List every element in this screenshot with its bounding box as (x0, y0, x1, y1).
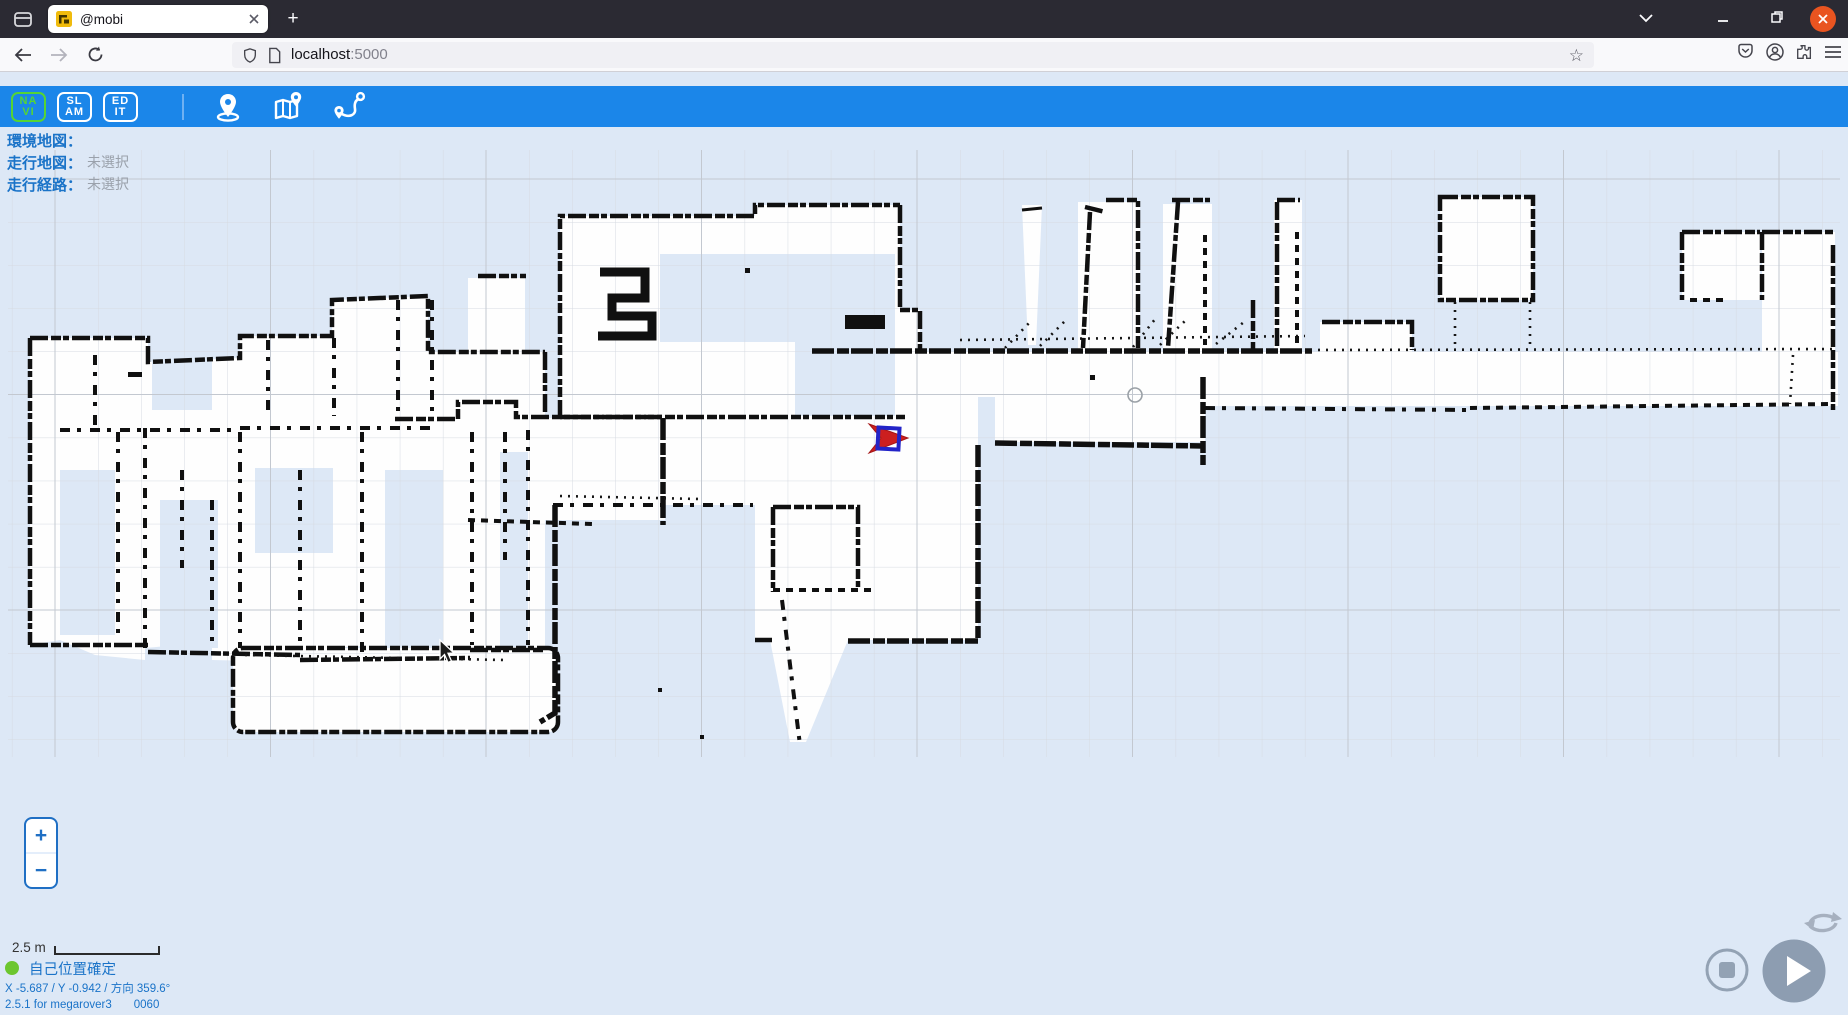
loop-route-icon[interactable] (1802, 906, 1844, 941)
bookmark-star-icon[interactable]: ☆ (1569, 47, 1584, 64)
scale-label: 2.5 m (12, 940, 46, 955)
menu-hamburger-icon[interactable] (1824, 45, 1842, 64)
new-tab-button[interactable]: + (280, 6, 306, 32)
drive-map-value: 未選択 (87, 152, 129, 172)
app-viewport: NA VI SL AM ED IT (0, 72, 1848, 1015)
zoom-out-button[interactable]: − (26, 854, 56, 887)
browser-tab[interactable]: @mobi (48, 5, 268, 33)
url-host: localhost (291, 46, 350, 63)
url-bar[interactable]: localhost:5000 ☆ (232, 42, 1594, 68)
version-text: 2.5.1 for megarover3 (5, 999, 112, 1011)
tab-list-chevron-icon[interactable] (1638, 10, 1654, 28)
back-icon[interactable] (8, 42, 38, 68)
mode-button-navi[interactable]: NA VI (11, 92, 46, 122)
pose-readout: X -5.687 / Y -0.942 / 方向 359.6° (5, 980, 170, 996)
reload-icon[interactable] (80, 42, 110, 68)
tab-favicon (56, 11, 72, 27)
localization-status-dot (5, 961, 19, 975)
drive-map-label: 走行地図： (7, 152, 82, 173)
page-info-icon[interactable] (267, 47, 282, 64)
map-selection-panel: 環境地図： 走行地図： 未選択 走行経路： 未選択 (7, 129, 129, 195)
map-grid (8, 150, 1840, 757)
version-code: 0060 (134, 999, 160, 1011)
play-button[interactable] (1761, 938, 1827, 1009)
status-panel: 自己位置確定 X -5.687 / Y -0.942 / 方向 359.6° 2… (5, 959, 170, 1011)
account-icon[interactable] (1765, 42, 1785, 67)
route-value: 未選択 (87, 174, 129, 194)
close-window-icon[interactable] (1810, 6, 1836, 32)
env-map-label: 環境地図： (7, 130, 82, 151)
mode-button-slam[interactable]: SL AM (57, 92, 92, 122)
minimize-icon[interactable] (1716, 10, 1730, 29)
forward-icon[interactable] (44, 42, 74, 68)
zoom-in-button[interactable]: + (26, 819, 56, 852)
pocket-icon[interactable] (1736, 43, 1755, 66)
url-port: :5000 (350, 46, 388, 63)
localization-status-text: 自己位置確定 (29, 958, 116, 979)
shield-icon[interactable] (242, 47, 258, 64)
browser-navbar: localhost:5000 ☆ (0, 38, 1848, 72)
restore-window-icon[interactable] (1770, 10, 1784, 29)
tab-close-icon[interactable] (248, 13, 260, 25)
map-scale: 2.5 m (12, 940, 160, 955)
set-position-icon[interactable] (212, 91, 244, 123)
map-select-icon[interactable] (272, 91, 304, 123)
mode-toolbar: NA VI SL AM ED IT (0, 86, 1848, 127)
tab-title: @mobi (80, 12, 248, 27)
mode-button-edit[interactable]: ED IT (103, 92, 138, 122)
firefox-view-icon[interactable] (8, 6, 38, 32)
map-canvas[interactable] (0, 72, 1848, 1015)
stop-button[interactable] (1703, 946, 1751, 999)
zoom-control: + − (24, 817, 58, 889)
scale-bar (54, 946, 160, 955)
toolbar-divider (182, 94, 184, 120)
browser-titlebar: @mobi + (0, 0, 1848, 38)
extensions-puzzle-icon[interactable] (1795, 43, 1814, 67)
route-label: 走行経路： (7, 174, 82, 195)
route-select-icon[interactable] (332, 91, 366, 123)
